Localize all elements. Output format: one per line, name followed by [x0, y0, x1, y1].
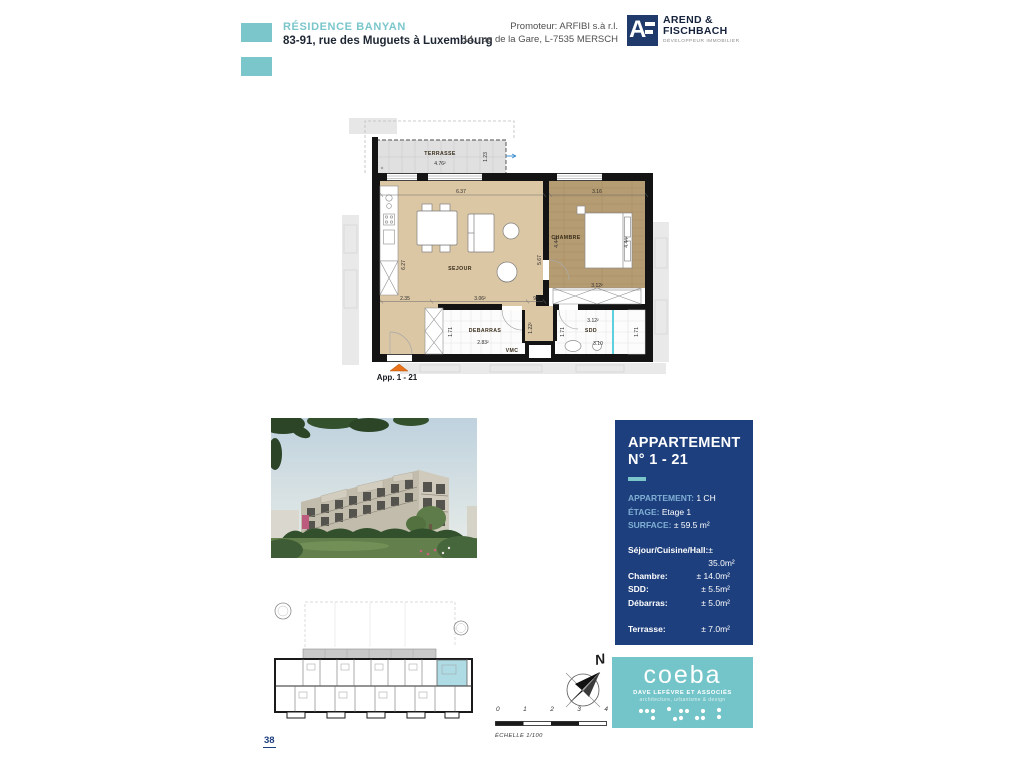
accent-square-top [241, 23, 272, 42]
area-row: Débarras: ± 5.0m² [628, 597, 740, 610]
entrance-door [387, 355, 412, 361]
arend-fischbach-logo: A AREND & FISCHBACH DÉVELOPPEUR IMMOBILI… [627, 15, 740, 46]
dim-sejour-right: 5.67 [537, 255, 543, 265]
dining-table [417, 204, 457, 252]
dim-chambre-top: 3.16 [592, 189, 602, 195]
armchair [497, 262, 517, 282]
promoter-block: Promoteur: ARFIBI s.à r.l. 14, rue de la… [463, 21, 618, 47]
project-name: RÉSIDENCE BANYAN [283, 21, 493, 34]
info-title-line1: APPARTEMENT [628, 435, 740, 452]
dim-sdd-width: 3.10 [593, 341, 603, 347]
scale-bar: 0 1 2 3 4 ÉCHELLE 1/100 [495, 706, 611, 739]
floor-overview-plan [265, 592, 482, 730]
tree-symbol [454, 621, 468, 635]
dim-bed-right: 4.44² [624, 236, 630, 248]
project-address: 83-91, rue des Muguets à Luxembourg [283, 35, 493, 48]
detail-row: SURFACE: ± 59.5 m² [628, 519, 740, 532]
apartment-floor-plan: TERRASSE 4.76² 1.23 [340, 110, 670, 385]
coeba-name: coeba [612, 663, 753, 688]
dim-debarras-depth: 1.71 [448, 327, 454, 337]
area-row: Chambre: ± 14.0m² [628, 570, 740, 583]
highlighted-unit [437, 660, 467, 686]
af-letter: A [629, 17, 646, 43]
accent-square-bottom [241, 57, 272, 76]
sejour-label: SEJOUR [448, 266, 472, 272]
sofa [468, 214, 494, 252]
apartment-marker-label: App. 1 - 21 [377, 373, 418, 382]
sdd-area: 3.12² [587, 318, 599, 324]
dim-sejour-left: 6.27 [401, 260, 407, 270]
debarras-area: 2.83² [477, 340, 489, 346]
detail-row: APPARTEMENT: 1 CH [628, 492, 740, 505]
project-title-block: RÉSIDENCE BANYAN 83-91, rue des Muguets … [283, 21, 493, 48]
dim-bottom-3: 95 [533, 296, 539, 302]
coeba-logo: coeba DAVE LEFÈVRE ET ASSOCIÉS architect… [612, 657, 753, 728]
kitchen-counter [380, 186, 398, 295]
north-label: N [593, 650, 607, 668]
dim-sejour-top: 6.37 [456, 189, 466, 195]
debarras-label: DEBARRAS [469, 328, 502, 334]
side-table [503, 223, 519, 239]
bedroom-wardrobe [553, 288, 641, 304]
terrace-area: 4.76² [434, 161, 446, 167]
dim-hall: 1.22² [528, 322, 534, 334]
scale-label: ÉCHELLE 1/100 [495, 733, 611, 739]
dim-bed-left: 4.44² [554, 236, 560, 248]
scale-ticks: 0 1 2 3 4 [496, 706, 608, 713]
vmc-closet [529, 345, 551, 358]
coeba-dots-icon [635, 706, 731, 722]
info-title-line2: N° 1 - 21 [628, 452, 740, 469]
sdd-label: SDD [585, 328, 597, 334]
area-list: Séjour/Cuisine/Hall: ± 35.0m² Chambre: ±… [628, 544, 740, 636]
promoter-line2: 14, rue de la Gare, L-7535 MERSCH [463, 34, 618, 47]
area-row: Terrasse: ± 7.0m² [628, 623, 740, 636]
terrace: TERRASSE 4.76² 1.23 [372, 137, 516, 177]
tree-symbol [275, 603, 291, 619]
terrace-label: TERRASSE [424, 151, 456, 157]
dim-sdd-right: 1.71 [634, 327, 640, 337]
hall-wardrobe [425, 308, 443, 354]
dim-chambre-bottom: 3.12² [591, 283, 603, 289]
page-number: 38 [263, 735, 276, 748]
area-row: Séjour/Cuisine/Hall: ± 35.0m² [628, 544, 740, 570]
coeba-tagline: architecture, urbanisme & design [612, 697, 753, 703]
accent-dash [628, 477, 646, 481]
logo-tagline: DÉVELOPPEUR IMMOBILIER [663, 39, 740, 44]
north-compass: N [556, 650, 614, 712]
apartment-info-panel: APPARTEMENT N° 1 - 21 APPARTEMENT: 1 CH … [615, 420, 753, 645]
vmc-label: VMC [506, 348, 519, 354]
dim-sdd-left: 1.71 [560, 327, 566, 337]
coeba-subtitle: DAVE LEFÈVRE ET ASSOCIÉS [612, 690, 753, 696]
detail-row: ÉTAGE: Etage 1 [628, 506, 740, 519]
terrace-marker-arrow [506, 154, 516, 158]
af-monogram-icon: A [627, 15, 658, 46]
logo-name-2: FISCHBACH [663, 26, 740, 37]
dim-bottom-1: 2.35 [400, 296, 410, 302]
promoter-line1: Promoteur: ARFIBI s.à r.l. [463, 21, 618, 34]
pink-sign [302, 515, 309, 529]
area-row: SDD: ± 5.5m² [628, 583, 740, 596]
scale-segments [495, 721, 607, 726]
building-photo [271, 418, 477, 558]
dim-bottom-2: 3.06² [474, 296, 486, 302]
terrace-depth: 1.23 [483, 152, 489, 162]
